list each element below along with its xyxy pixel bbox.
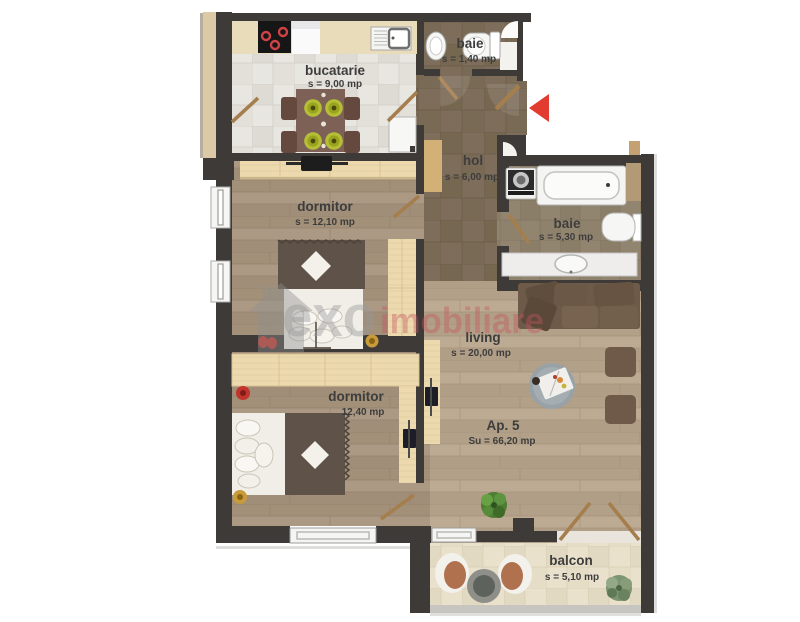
svg-text:s = 12,10 mp: s = 12,10 mp [295,217,355,228]
svg-text:Su = 66,20 mp: Su = 66,20 mp [469,436,536,447]
svg-text:s = 6,00 mp: s = 6,00 mp [445,172,499,183]
svg-text:baie: baie [456,36,484,51]
svg-text:hol: hol [463,153,483,168]
svg-text:dormitor: dormitor [297,199,353,214]
svg-text:12,40 mp: 12,40 mp [342,407,385,418]
svg-text:s = 5,10 mp: s = 5,10 mp [545,572,599,583]
svg-text:imobiliare: imobiliare [380,300,544,341]
svg-text:s = 9,00 mp: s = 9,00 mp [308,79,362,90]
svg-text:s = 5,30 mp: s = 5,30 mp [539,232,593,243]
svg-text:Ap. 5: Ap. 5 [486,418,519,433]
svg-text:dormitor: dormitor [328,389,384,404]
svg-text:baie: baie [553,216,581,231]
svg-text:exo: exo [282,284,376,349]
svg-text:balcon: balcon [549,553,593,568]
svg-text:s = 20,00 mp: s = 20,00 mp [451,348,511,359]
svg-text:bucatarie: bucatarie [305,63,366,78]
svg-text:s = 1,40 mp: s = 1,40 mp [442,54,496,65]
